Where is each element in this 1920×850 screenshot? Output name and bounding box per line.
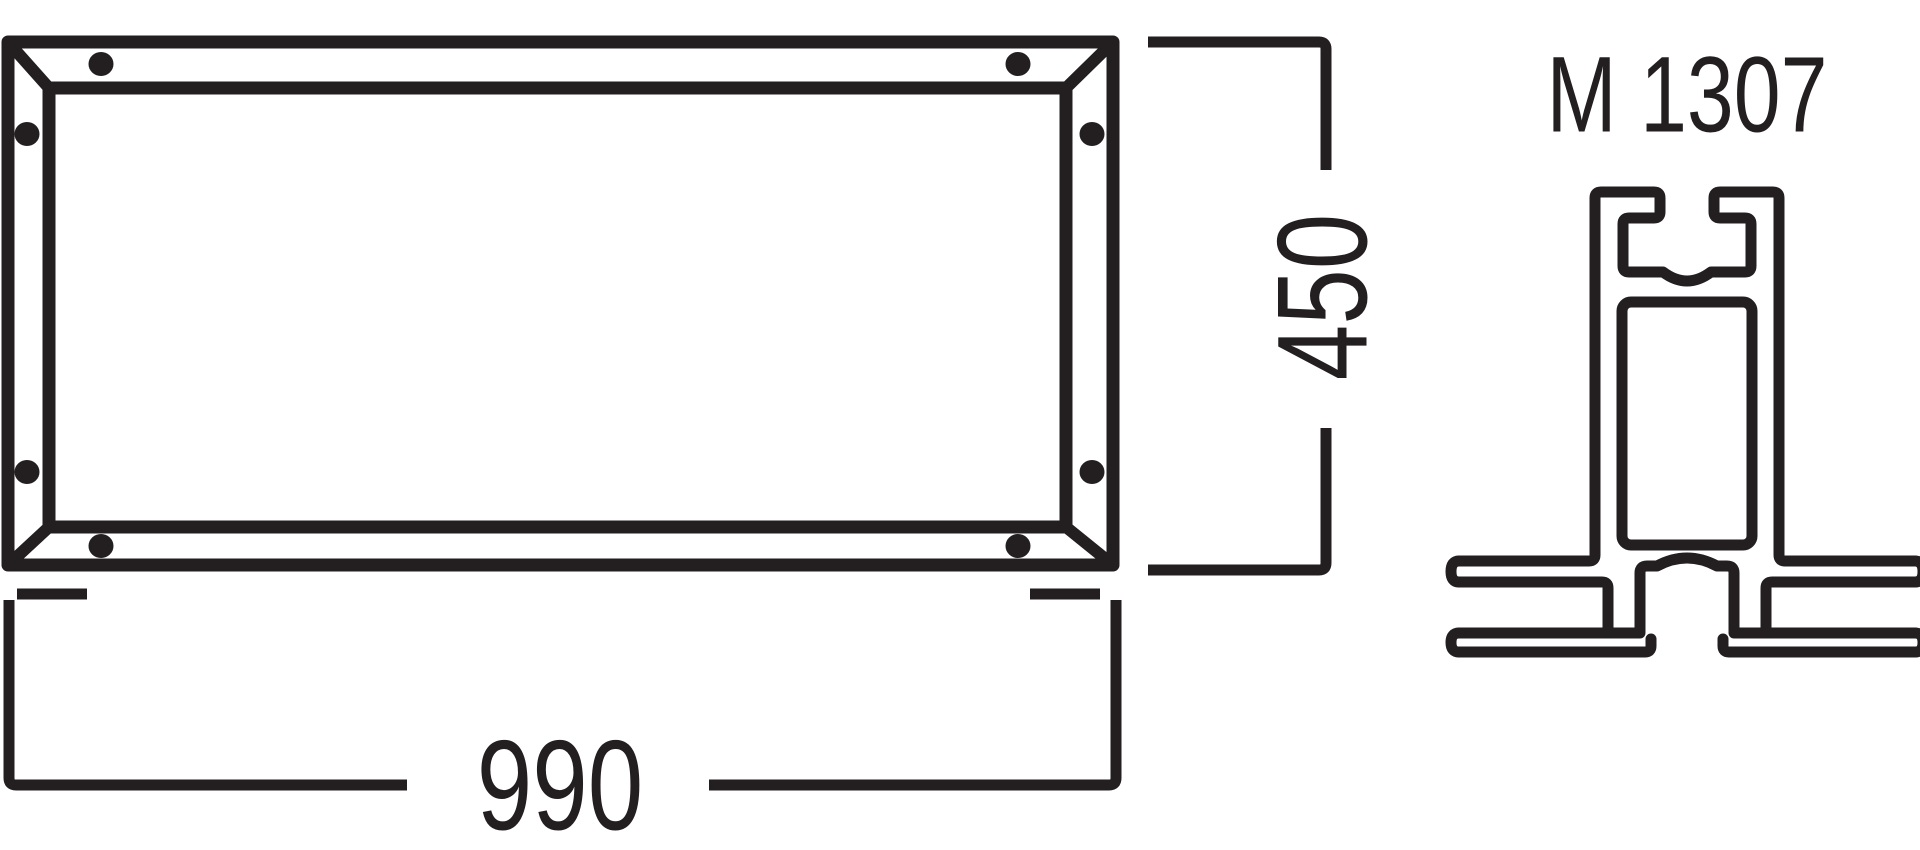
width-dim-line-left bbox=[9, 600, 407, 785]
screw-dot-top-right bbox=[1006, 52, 1031, 76]
profile-cross-section: M 1307 bbox=[1451, 33, 1920, 652]
screw-dot-top-left bbox=[89, 52, 114, 76]
screw-dot-right-upper bbox=[1080, 122, 1105, 146]
height-dimension: 450 bbox=[1148, 42, 1394, 570]
profile-bottom-channel bbox=[1640, 558, 1734, 631]
height-dim-label: 450 bbox=[1252, 214, 1395, 381]
technical-drawing: 990 450 M 1307 bbox=[0, 0, 1920, 850]
frame-outer-rect bbox=[8, 42, 1113, 565]
screw-dot-bottom-left bbox=[89, 534, 114, 558]
profile-lower-finger-bottom-right bbox=[1723, 639, 1915, 652]
profile-label: M 1307 bbox=[1547, 33, 1828, 155]
width-dim-line-right bbox=[709, 600, 1116, 785]
profile-upper-finger-bottom-left bbox=[1459, 582, 1608, 633]
screw-dot-bottom-right bbox=[1006, 534, 1031, 558]
height-dim-line-top bbox=[1148, 42, 1326, 170]
profile-lower-finger-bottom-left bbox=[1459, 639, 1651, 652]
screw-dot-left-upper bbox=[15, 122, 40, 146]
screw-dot-right-lower bbox=[1080, 460, 1105, 484]
width-dim-label: 990 bbox=[477, 715, 644, 850]
profile-outer-contour bbox=[1459, 192, 1915, 561]
drawing-canvas: 990 450 M 1307 bbox=[0, 0, 1920, 850]
height-dim-line-bottom bbox=[1148, 428, 1326, 570]
frame-front-view bbox=[8, 42, 1113, 594]
frame-inner-rect bbox=[49, 88, 1066, 527]
frame-miter-top-right bbox=[1066, 42, 1113, 88]
screw-dot-left-lower bbox=[15, 460, 40, 484]
profile-upper-finger-bottom-right bbox=[1766, 582, 1915, 633]
width-dimension: 990 bbox=[9, 600, 1116, 850]
profile-chamber bbox=[1622, 302, 1752, 545]
